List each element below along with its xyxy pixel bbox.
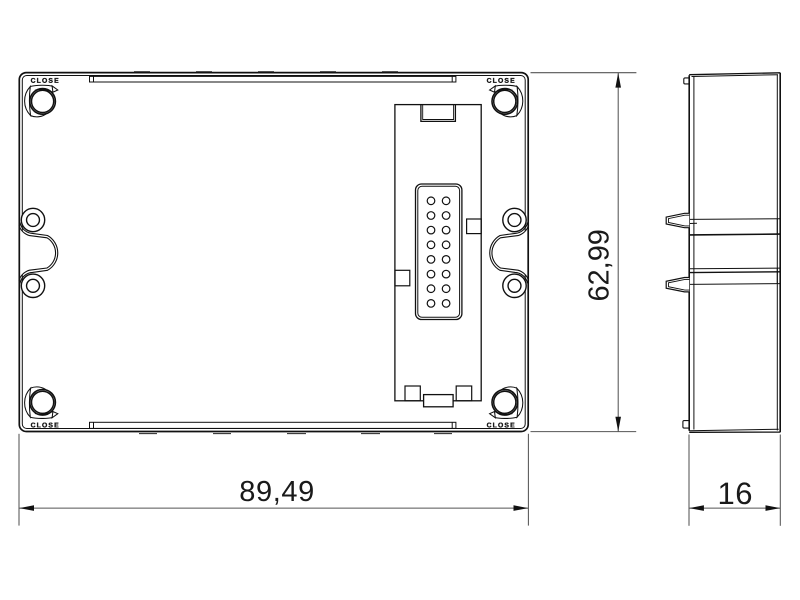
svg-text:16: 16 [717, 476, 752, 511]
svg-text:CLOSE: CLOSE [487, 422, 516, 429]
svg-text:CLOSE: CLOSE [31, 422, 60, 429]
svg-text:CLOSE: CLOSE [31, 78, 60, 85]
svg-text:89,49: 89,49 [239, 476, 314, 508]
svg-text:62,99: 62,99 [584, 229, 616, 302]
svg-text:CLOSE: CLOSE [487, 78, 516, 85]
